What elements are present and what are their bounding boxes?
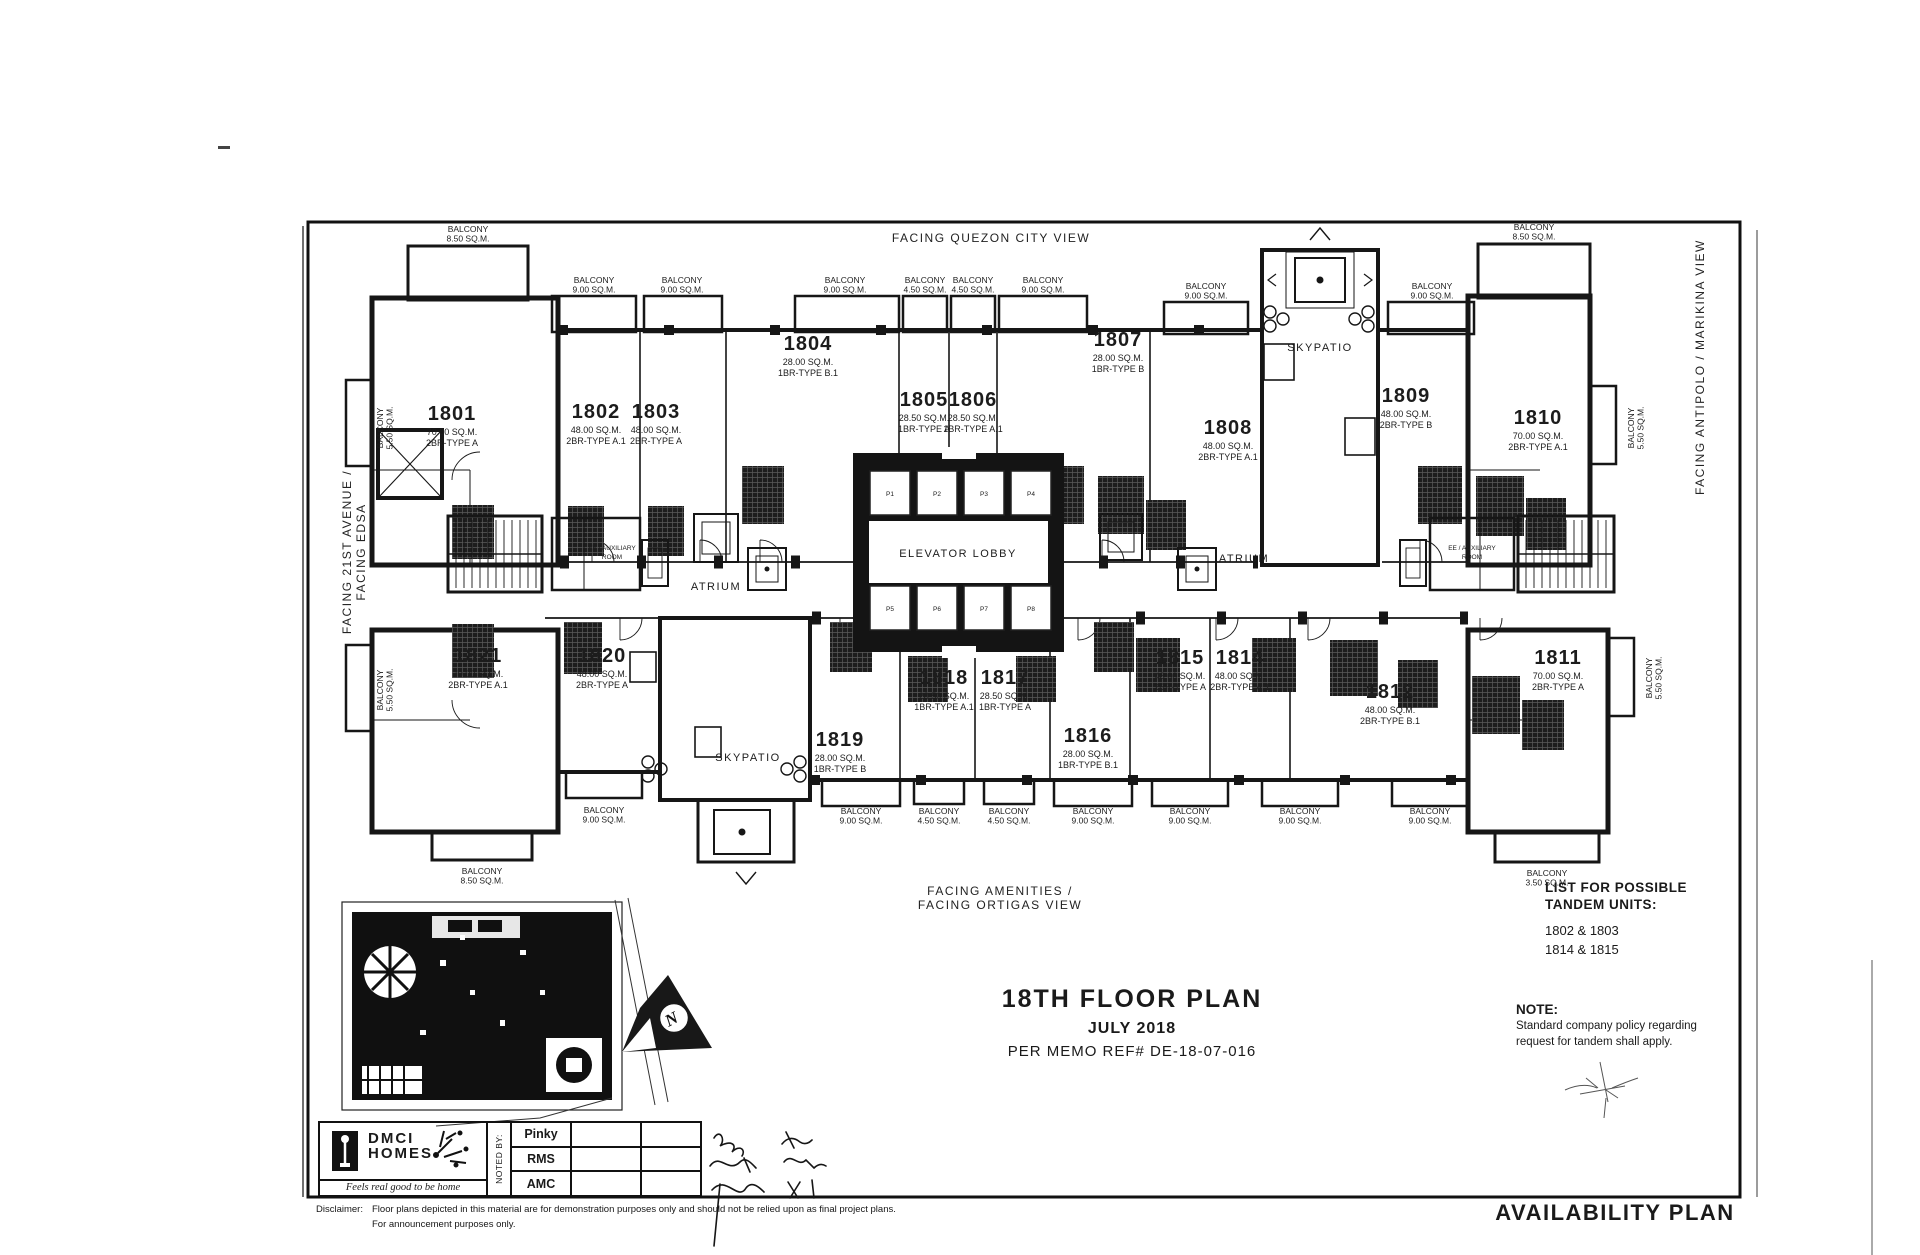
svg-text:8.50 SQ.M.: 8.50 SQ.M. bbox=[447, 234, 490, 244]
scan-speck bbox=[218, 146, 230, 149]
svg-text:2BR-TYPE A: 2BR-TYPE A bbox=[630, 436, 682, 446]
skypatio-top-label: SKYPATIO bbox=[1287, 342, 1352, 354]
svg-text:BALCONY: BALCONY bbox=[574, 275, 615, 285]
svg-text:28.50 SQ.M.: 28.50 SQ.M. bbox=[980, 691, 1031, 701]
svg-text:BALCONY: BALCONY bbox=[584, 805, 625, 815]
svg-text:4.50 SQ.M.: 4.50 SQ.M. bbox=[904, 285, 947, 295]
svg-text:2BR-TYPE A.1: 2BR-TYPE A.1 bbox=[566, 436, 626, 446]
svg-text:2BR-TYPE B.1: 2BR-TYPE B.1 bbox=[1360, 716, 1420, 726]
balcony-label: BALCONY5.50 SQ.M. bbox=[375, 669, 395, 712]
elevator-p6-label: P6 bbox=[933, 606, 941, 613]
svg-text:1BR-TYPE B: 1BR-TYPE B bbox=[814, 764, 867, 774]
balcony-label: BALCONY9.00 SQ.M. bbox=[573, 275, 616, 295]
svg-text:1812: 1812 bbox=[1366, 681, 1415, 703]
svg-text:1BR-TYPE A: 1BR-TYPE A bbox=[979, 702, 1031, 712]
signature-column-2 bbox=[640, 1123, 700, 1195]
unit-1803-label: 180348.00 SQ.M.2BR-TYPE A bbox=[630, 401, 682, 446]
svg-text:4.50 SQ.M.: 4.50 SQ.M. bbox=[988, 816, 1031, 826]
balcony-label: BALCONY9.00 SQ.M. bbox=[1279, 806, 1322, 826]
svg-text:9.00 SQ.M.: 9.00 SQ.M. bbox=[1022, 285, 1065, 295]
disclaimer-line1: Floor plans depicted in this material ar… bbox=[372, 1204, 896, 1215]
svg-text:28.50 SQ.M.: 28.50 SQ.M. bbox=[899, 413, 950, 423]
compass: N bbox=[622, 975, 712, 1052]
atrium-right-label: ATRIUM bbox=[1219, 553, 1269, 565]
unit-1811-label: 181170.00 SQ.M.2BR-TYPE A bbox=[1532, 647, 1584, 692]
svg-text:5.50 SQ.M.: 5.50 SQ.M. bbox=[1636, 407, 1646, 450]
view-label-bottom: FACING AMENITIES / FACING ORTIGAS VIEW bbox=[918, 884, 1082, 912]
svg-text:5.50 SQ.M.: 5.50 SQ.M. bbox=[385, 669, 395, 712]
unit-1805-label: 180528.50 SQ.M.1BR-TYPE A bbox=[898, 389, 950, 434]
approver-row: AMC bbox=[512, 1170, 570, 1195]
svg-text:BALCONY: BALCONY bbox=[953, 275, 994, 285]
balcony-label: BALCONY4.50 SQ.M. bbox=[988, 806, 1031, 826]
svg-text:9.00 SQ.M.: 9.00 SQ.M. bbox=[1072, 816, 1115, 826]
elevator-p2-label: P2 bbox=[933, 491, 941, 498]
svg-text:9.00 SQ.M.: 9.00 SQ.M. bbox=[824, 285, 867, 295]
svg-text:BALCONY: BALCONY bbox=[1412, 281, 1453, 291]
svg-text:8.50 SQ.M.: 8.50 SQ.M. bbox=[1513, 232, 1556, 242]
unit-1816-label: 181628.00 SQ.M.1BR-TYPE B.1 bbox=[1058, 725, 1118, 770]
noted-by-strip: NOTED BY: bbox=[486, 1123, 510, 1195]
svg-text:1BR-TYPE B.1: 1BR-TYPE B.1 bbox=[778, 368, 838, 378]
balcony-label: BALCONY9.00 SQ.M. bbox=[1022, 275, 1065, 295]
svg-text:2BR-TYPE A: 2BR-TYPE A bbox=[576, 680, 628, 690]
svg-text:9.00 SQ.M.: 9.00 SQ.M. bbox=[1279, 816, 1322, 826]
aux-room-right-label: EE / AUXILIARY bbox=[1448, 545, 1496, 552]
svg-text:1810: 1810 bbox=[1514, 407, 1563, 429]
svg-text:1819: 1819 bbox=[816, 729, 865, 751]
svg-text:1821: 1821 bbox=[454, 645, 503, 667]
svg-text:1805: 1805 bbox=[900, 389, 949, 411]
svg-text:48.00 SQ.M.: 48.00 SQ.M. bbox=[577, 669, 628, 679]
key-plan bbox=[342, 898, 668, 1126]
svg-text:9.00 SQ.M.: 9.00 SQ.M. bbox=[661, 285, 704, 295]
dmci-logo: DMCI HOMES Feels real good to be home bbox=[320, 1123, 486, 1195]
svg-text:48.00 SQ.M.: 48.00 SQ.M. bbox=[1155, 671, 1206, 681]
svg-text:9.00 SQ.M.: 9.00 SQ.M. bbox=[1411, 291, 1454, 301]
elevator-lobby-label: ELEVATOR LOBBY bbox=[899, 548, 1017, 560]
svg-text:28.50 SQ.M.: 28.50 SQ.M. bbox=[919, 691, 970, 701]
balcony-label: BALCONY9.00 SQ.M. bbox=[840, 806, 883, 826]
unit-1801-label: 180170.00 SQ.M.2BR-TYPE A bbox=[426, 403, 478, 448]
unit-1804-label: 180428.00 SQ.M.1BR-TYPE B.1 bbox=[778, 333, 838, 378]
svg-text:ROOM: ROOM bbox=[1462, 554, 1482, 561]
svg-text:1815: 1815 bbox=[1156, 647, 1205, 669]
balcony-label: BALCONY9.00 SQ.M. bbox=[1072, 806, 1115, 826]
svg-text:48.00 SQ.M.: 48.00 SQ.M. bbox=[1381, 409, 1432, 419]
floor-plan-drawing: EE / AUXILIARY ROOM EE / AUXILIARY ROOM bbox=[0, 0, 1920, 1255]
svg-text:1817: 1817 bbox=[981, 667, 1030, 689]
svg-text:BALCONY: BALCONY bbox=[448, 224, 489, 234]
svg-text:28.50 SQ.M.: 28.50 SQ.M. bbox=[948, 413, 999, 423]
svg-text:1808: 1808 bbox=[1204, 417, 1253, 439]
svg-text:48.00 SQ.M.: 48.00 SQ.M. bbox=[631, 425, 682, 435]
sketch-star bbox=[1565, 1062, 1638, 1118]
balcony-label: BALCONY9.00 SQ.M. bbox=[1411, 281, 1454, 301]
svg-text:1BR-TYPE A.1: 1BR-TYPE A.1 bbox=[943, 424, 1003, 434]
balcony-label: BALCONY9.00 SQ.M. bbox=[1185, 281, 1228, 301]
svg-text:2BR-TYPE B: 2BR-TYPE B bbox=[1380, 420, 1433, 430]
svg-text:1818: 1818 bbox=[920, 667, 969, 689]
elevator-p7-label: P7 bbox=[980, 606, 988, 613]
balcony-label: BALCONY9.00 SQ.M. bbox=[1409, 806, 1452, 826]
svg-text:1806: 1806 bbox=[949, 389, 998, 411]
elevator-p8-label: P8 bbox=[1027, 606, 1035, 613]
balcony-label: BALCONY8.50 SQ.M. bbox=[447, 224, 490, 244]
svg-text:BALCONY: BALCONY bbox=[1170, 806, 1211, 816]
logo-starburst-icon bbox=[434, 1131, 468, 1167]
disclaimer-label: Disclaimer: bbox=[316, 1204, 363, 1215]
balcony-label: BALCONY9.00 SQ.M. bbox=[661, 275, 704, 295]
svg-text:9.00 SQ.M.: 9.00 SQ.M. bbox=[840, 816, 883, 826]
elevator-p1-label: P1 bbox=[886, 491, 894, 498]
tandem-heading: LIST FOR POSSIBLE TANDEM UNITS: bbox=[1545, 880, 1775, 914]
tandem-pair: 1802 & 1803 bbox=[1545, 921, 1775, 941]
svg-text:BALCONY: BALCONY bbox=[662, 275, 703, 285]
availability-plan-label: AVAILABILITY PLAN bbox=[1445, 1200, 1785, 1226]
svg-text:70.00 SQ.M.: 70.00 SQ.M. bbox=[453, 669, 504, 679]
balcony-label: BALCONY8.50 SQ.M. bbox=[461, 866, 504, 886]
sheet-title: 18TH FLOOR PLAN JULY 2018 PER MEMO REF# … bbox=[922, 985, 1342, 1060]
svg-text:48.00 SQ.M.: 48.00 SQ.M. bbox=[1365, 705, 1416, 715]
unit-1808-label: 180848.00 SQ.M.2BR-TYPE A.1 bbox=[1198, 417, 1258, 462]
atrium-left-label: ATRIUM bbox=[691, 581, 741, 593]
svg-text:BALCONY: BALCONY bbox=[375, 669, 385, 710]
unit-1810-label: 181070.00 SQ.M.2BR-TYPE A.1 bbox=[1508, 407, 1568, 452]
svg-text:48.00 SQ.M.: 48.00 SQ.M. bbox=[1215, 671, 1266, 681]
elevator-p5-label: P5 bbox=[886, 606, 894, 613]
svg-text:BALCONY: BALCONY bbox=[1023, 275, 1064, 285]
scanned-floor-plan-sheet: { "document": { "sheet_label": "AVAILABI… bbox=[0, 0, 1920, 1255]
tandem-units-list: LIST FOR POSSIBLE TANDEM UNITS: 1802 & 1… bbox=[1545, 880, 1775, 960]
svg-text:1807: 1807 bbox=[1094, 329, 1143, 351]
unit-1819-label: 181928.00 SQ.M.1BR-TYPE B bbox=[814, 729, 867, 774]
balcony-label: BALCONY5.50 SQ.M. bbox=[1626, 407, 1646, 450]
balcony-label: BALCONY9.00 SQ.M. bbox=[824, 275, 867, 295]
approval-block: DMCI HOMES Feels real good to be home NO… bbox=[318, 1121, 702, 1197]
svg-text:9.00 SQ.M.: 9.00 SQ.M. bbox=[1185, 291, 1228, 301]
svg-text:2BR-TYPE A: 2BR-TYPE A bbox=[426, 438, 478, 448]
aux-room-left-label: EE / AUXILIARY bbox=[588, 545, 636, 552]
balcony-label: BALCONY8.50 SQ.M. bbox=[1513, 222, 1556, 242]
svg-text:BALCONY: BALCONY bbox=[1186, 281, 1227, 291]
skypatio-bottom-label: SKYPATIO bbox=[715, 752, 780, 764]
floor-plan-date: JULY 2018 bbox=[922, 1020, 1342, 1038]
svg-text:1804: 1804 bbox=[784, 333, 833, 355]
svg-text:2BR-TYPE A.1: 2BR-TYPE A.1 bbox=[1210, 682, 1270, 692]
svg-text:1820: 1820 bbox=[578, 645, 627, 667]
svg-text:1BR-TYPE B.1: 1BR-TYPE B.1 bbox=[1058, 760, 1118, 770]
elevator-p4-label: P4 bbox=[1027, 491, 1035, 498]
svg-text:9.00 SQ.M.: 9.00 SQ.M. bbox=[583, 815, 626, 825]
svg-text:1809: 1809 bbox=[1382, 385, 1431, 407]
svg-text:1803: 1803 bbox=[632, 401, 681, 423]
svg-text:1802: 1802 bbox=[572, 401, 621, 423]
note-heading: NOTE: bbox=[1516, 1002, 1756, 1017]
svg-text:BALCONY: BALCONY bbox=[1514, 222, 1555, 232]
svg-text:BALCONY: BALCONY bbox=[1527, 868, 1568, 878]
floor-plan-memo-ref: PER MEMO REF# DE-18-07-016 bbox=[922, 1043, 1342, 1060]
floor-plan-title: 18TH FLOOR PLAN bbox=[922, 985, 1342, 1014]
unit-1807-label: 180728.00 SQ.M.1BR-TYPE B bbox=[1092, 329, 1145, 374]
svg-text:2BR-TYPE A: 2BR-TYPE A bbox=[1154, 682, 1206, 692]
balcony-label: BALCONY9.00 SQ.M. bbox=[1169, 806, 1212, 826]
view-label-top: FACING QUEZON CITY VIEW bbox=[892, 231, 1090, 245]
svg-text:2BR-TYPE A.1: 2BR-TYPE A.1 bbox=[1508, 442, 1568, 452]
svg-text:9.00 SQ.M.: 9.00 SQ.M. bbox=[1169, 816, 1212, 826]
svg-text:1814: 1814 bbox=[1216, 647, 1265, 669]
svg-text:2BR-TYPE A.1: 2BR-TYPE A.1 bbox=[448, 680, 508, 690]
svg-text:BALCONY: BALCONY bbox=[1644, 657, 1654, 698]
tandem-pair: 1814 & 1815 bbox=[1545, 940, 1775, 960]
svg-text:BALCONY: BALCONY bbox=[841, 806, 882, 816]
svg-text:5.50 SQ.M.: 5.50 SQ.M. bbox=[1654, 657, 1664, 700]
svg-text:4.50 SQ.M.: 4.50 SQ.M. bbox=[918, 816, 961, 826]
svg-text:ROOM: ROOM bbox=[602, 554, 622, 561]
balcony-label: BALCONY5.50 SQ.M. bbox=[375, 407, 395, 450]
approver-names: Pinky RMS AMC bbox=[510, 1123, 570, 1195]
svg-text:1BR-TYPE A: 1BR-TYPE A bbox=[898, 424, 950, 434]
svg-text:BALCONY: BALCONY bbox=[989, 806, 1030, 816]
note-block: NOTE: Standard company policy regarding … bbox=[1516, 1002, 1756, 1050]
svg-text:5.50 SQ.M.: 5.50 SQ.M. bbox=[385, 407, 395, 450]
svg-text:28.00 SQ.M.: 28.00 SQ.M. bbox=[1063, 749, 1114, 759]
balcony-label: BALCONY4.50 SQ.M. bbox=[952, 275, 995, 295]
svg-text:2BR-TYPE A.1: 2BR-TYPE A.1 bbox=[1198, 452, 1258, 462]
svg-text:28.00 SQ.M.: 28.00 SQ.M. bbox=[815, 753, 866, 763]
brand-name-line1: DMCI bbox=[368, 1131, 433, 1146]
brand-tagline: Feels real good to be home bbox=[320, 1179, 486, 1195]
svg-text:1801: 1801 bbox=[428, 403, 477, 425]
signature-column-1 bbox=[570, 1123, 640, 1195]
svg-text:28.00 SQ.M.: 28.00 SQ.M. bbox=[1093, 353, 1144, 363]
svg-text:1BR-TYPE A.1: 1BR-TYPE A.1 bbox=[914, 702, 974, 712]
svg-text:28.00 SQ.M.: 28.00 SQ.M. bbox=[783, 357, 834, 367]
svg-text:1811: 1811 bbox=[1534, 647, 1581, 669]
svg-text:BALCONY: BALCONY bbox=[462, 866, 503, 876]
svg-text:BALCONY: BALCONY bbox=[919, 806, 960, 816]
svg-text:70.00 SQ.M.: 70.00 SQ.M. bbox=[427, 427, 478, 437]
balcony-label: BALCONY5.50 SQ.M. bbox=[1644, 657, 1664, 700]
svg-text:8.50 SQ.M.: 8.50 SQ.M. bbox=[461, 876, 504, 886]
svg-text:2BR-TYPE A: 2BR-TYPE A bbox=[1532, 682, 1584, 692]
svg-text:BALCONY: BALCONY bbox=[1626, 407, 1636, 448]
svg-text:1BR-TYPE B: 1BR-TYPE B bbox=[1092, 364, 1145, 374]
svg-text:48.00 SQ.M.: 48.00 SQ.M. bbox=[1203, 441, 1254, 451]
brand-name-line2: HOMES bbox=[368, 1146, 433, 1161]
svg-text:9.00 SQ.M.: 9.00 SQ.M. bbox=[1409, 816, 1452, 826]
svg-text:48.00 SQ.M.: 48.00 SQ.M. bbox=[571, 425, 622, 435]
svg-text:BALCONY: BALCONY bbox=[1410, 806, 1451, 816]
unit-1809-label: 180948.00 SQ.M.2BR-TYPE B bbox=[1380, 385, 1433, 430]
svg-text:BALCONY: BALCONY bbox=[1073, 806, 1114, 816]
elevator-lobby: P1 P2 P3 P4 P5 P6 P7 P8 ELEVATOR LOBBY bbox=[853, 447, 1064, 658]
svg-text:BALCONY: BALCONY bbox=[375, 407, 385, 448]
unit-1806-label: 180628.50 SQ.M.1BR-TYPE A.1 bbox=[943, 389, 1003, 434]
svg-text:BALCONY: BALCONY bbox=[905, 275, 946, 285]
svg-text:BALCONY: BALCONY bbox=[825, 275, 866, 285]
unit-1802-label: 180248.00 SQ.M.2BR-TYPE A.1 bbox=[566, 401, 626, 446]
approver-row: RMS bbox=[512, 1146, 570, 1171]
elevator-p3-label: P3 bbox=[980, 491, 988, 498]
balcony-label: BALCONY4.50 SQ.M. bbox=[918, 806, 961, 826]
svg-text:9.00 SQ.M.: 9.00 SQ.M. bbox=[573, 285, 616, 295]
svg-text:70.00 SQ.M.: 70.00 SQ.M. bbox=[1533, 671, 1584, 681]
svg-text:70.00 SQ.M.: 70.00 SQ.M. bbox=[1513, 431, 1564, 441]
disclaimer-line2: For announcement purposes only. bbox=[372, 1219, 515, 1230]
approver-row: Pinky bbox=[512, 1123, 570, 1146]
balcony-label: BALCONY4.50 SQ.M. bbox=[904, 275, 947, 295]
balcony-label: BALCONY9.00 SQ.M. bbox=[583, 805, 626, 825]
svg-text:BALCONY: BALCONY bbox=[1280, 806, 1321, 816]
svg-text:4.50 SQ.M.: 4.50 SQ.M. bbox=[952, 285, 995, 295]
svg-text:1816: 1816 bbox=[1064, 725, 1113, 747]
